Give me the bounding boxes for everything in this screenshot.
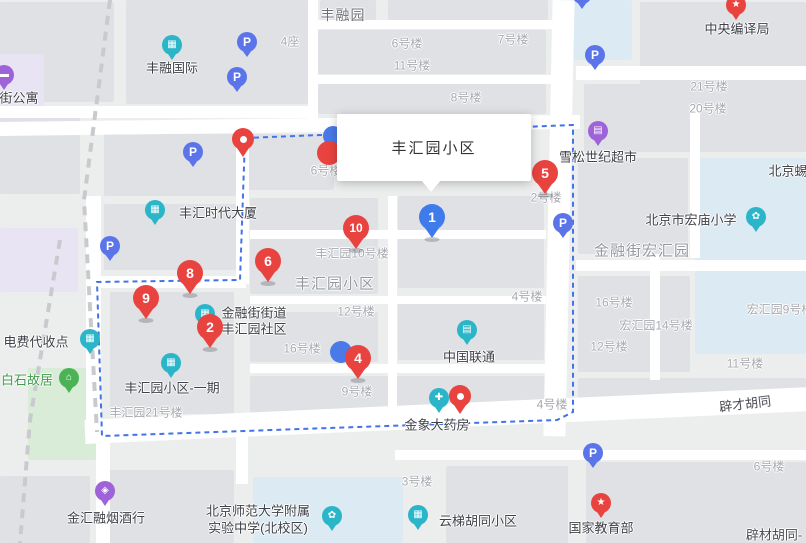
marker-number: 2 bbox=[197, 314, 223, 340]
poi-icon-tail bbox=[167, 372, 175, 378]
marker-number: 6 bbox=[255, 248, 281, 274]
parking-marker[interactable]: P bbox=[100, 236, 120, 262]
poi-icon-glyph: ⌂ bbox=[66, 373, 72, 383]
marker-8[interactable]: 8 bbox=[177, 260, 203, 296]
poi-label: 白石故居 bbox=[1, 370, 53, 389]
road bbox=[690, 106, 700, 258]
parking-marker[interactable]: P bbox=[583, 443, 603, 469]
parking-icon: P bbox=[553, 213, 573, 233]
map-block bbox=[104, 134, 236, 196]
road bbox=[86, 196, 101, 438]
street-label: 辟材胡同- bbox=[746, 525, 802, 543]
poi-icon-tail bbox=[0, 84, 8, 90]
pin-dot bbox=[457, 393, 464, 400]
jinxiang-pharmacy-icon[interactable]: ✚ bbox=[429, 388, 449, 408]
road bbox=[308, 0, 318, 122]
building-label: 16号楼 bbox=[283, 340, 320, 357]
road bbox=[250, 364, 546, 373]
pin-dot bbox=[240, 136, 247, 143]
building-label: 11号楼 bbox=[727, 355, 763, 372]
parking-marker[interactable]: P bbox=[553, 213, 573, 239]
poi-icon-glyph: ★ bbox=[732, 0, 741, 10]
parking-marker-tail bbox=[588, 461, 598, 468]
poi-label: 丰汇园社区 bbox=[221, 319, 286, 338]
poi-icon-tail bbox=[101, 500, 109, 506]
info-window[interactable]: 丰汇园小区 bbox=[337, 114, 531, 181]
poi-icon-glyph: ✚ bbox=[435, 393, 443, 403]
poi-icon-tail bbox=[594, 140, 602, 146]
location-pin[interactable] bbox=[232, 128, 254, 158]
poi-icon-tail bbox=[752, 226, 760, 232]
building-label: 4号楼 bbox=[537, 396, 568, 413]
building-label: 9号楼 bbox=[342, 383, 373, 400]
parking-marker[interactable]: P bbox=[183, 142, 203, 168]
parking-marker-tail bbox=[232, 85, 242, 92]
info-window-pointer bbox=[421, 180, 441, 192]
poi-label: 雪松世纪超市 bbox=[559, 147, 637, 166]
road bbox=[576, 260, 806, 271]
poi-icon-glyph: ★ bbox=[597, 498, 606, 508]
road bbox=[88, 276, 246, 288]
pin-tail bbox=[237, 148, 249, 157]
poi-label: 北京蜴 bbox=[768, 161, 806, 180]
building-label: 12号楼 bbox=[337, 303, 374, 320]
building-label: 6号楼 bbox=[392, 35, 423, 52]
poi-label: 丰汇园小区-一期 bbox=[124, 378, 219, 397]
poi-label: 中国联通 bbox=[443, 347, 495, 366]
area-label: 丰汇园小区 bbox=[295, 273, 375, 294]
parking-marker-tail bbox=[188, 160, 198, 167]
parking-marker-tail bbox=[105, 254, 115, 261]
poi-icon-tail bbox=[597, 512, 605, 518]
poi-icon-tail bbox=[732, 14, 740, 20]
parking-icon: P bbox=[183, 142, 203, 162]
marker-number: 4 bbox=[345, 345, 371, 371]
poi-icon-tail bbox=[435, 407, 443, 413]
poi-label: 金象大药房 bbox=[404, 415, 469, 434]
building-label: 16号楼 bbox=[595, 294, 632, 311]
building-label: 11号楼 bbox=[394, 57, 430, 74]
marker-number: 5 bbox=[532, 160, 558, 186]
road bbox=[318, 75, 560, 84]
poi-label: 云梯胡同小区 bbox=[439, 511, 517, 530]
marker-1[interactable]: 1 bbox=[419, 204, 445, 240]
location-pin[interactable] bbox=[449, 385, 471, 415]
marker-4[interactable]: 4 bbox=[345, 345, 371, 381]
poi-icon-tail bbox=[65, 387, 73, 393]
electric-fee-collection-icon[interactable]: ▦ bbox=[80, 329, 100, 349]
poi-label: 北京市宏庙小学 bbox=[645, 210, 736, 229]
parking-icon: P bbox=[100, 236, 120, 256]
poi-label: 电费代收点 bbox=[3, 332, 68, 351]
jinhui-tobacco-shop-icon[interactable]: ◈ bbox=[95, 481, 115, 501]
area-label: 丰融园 bbox=[321, 5, 366, 25]
poi-icon-glyph: ▬ bbox=[0, 70, 9, 80]
poi-icon-glyph: ▦ bbox=[85, 334, 94, 344]
poi-icon-glyph: ▤ bbox=[462, 325, 471, 335]
yunti-community-icon[interactable]: ▦ bbox=[408, 505, 428, 525]
marker-9[interactable]: 9 bbox=[133, 285, 159, 321]
building-label: 4号楼 bbox=[512, 288, 543, 305]
poi-label: 金汇融烟酒行 bbox=[67, 508, 145, 527]
building-label: 20号楼 bbox=[689, 100, 726, 117]
baishi-residence-icon[interactable]: ⌂ bbox=[59, 368, 79, 388]
building-label: 6号楼 bbox=[754, 458, 785, 475]
marker-number: 10 bbox=[343, 215, 369, 241]
map-block bbox=[446, 466, 568, 543]
road bbox=[250, 230, 546, 239]
parking-icon: P bbox=[237, 32, 257, 52]
parking-marker[interactable]: P bbox=[237, 32, 257, 58]
parking-marker[interactable]: P bbox=[572, 0, 592, 10]
poi-label: 中央编译局 bbox=[704, 19, 769, 38]
parking-marker-tail bbox=[590, 63, 600, 70]
poi-label: 实验中学(北校区) bbox=[208, 518, 308, 537]
building-label: 丰汇园21号楼 bbox=[109, 404, 182, 421]
building-label: 12号楼 bbox=[590, 338, 627, 355]
fenghuiyuan-phase1-icon[interactable]: ▦ bbox=[161, 353, 181, 373]
marker-6[interactable]: 6 bbox=[255, 248, 281, 284]
marker-number: 9 bbox=[133, 285, 159, 311]
parking-icon: P bbox=[227, 67, 247, 87]
building-label: 21号楼 bbox=[690, 78, 727, 95]
map-block bbox=[318, 84, 546, 114]
poi-icon-glyph: ▦ bbox=[166, 358, 175, 368]
poi-icon-glyph: ◈ bbox=[101, 486, 109, 496]
poi-icon-tail bbox=[151, 219, 159, 225]
pin-tail bbox=[454, 405, 466, 414]
map-block bbox=[126, 0, 308, 104]
map-block bbox=[388, 0, 548, 20]
china-unicom-icon[interactable]: ▤ bbox=[457, 320, 477, 340]
building-label: 宏汇园9号楼 bbox=[747, 301, 806, 318]
poi-label: 丰汇时代大厦 bbox=[179, 203, 257, 222]
parking-icon: P bbox=[583, 443, 603, 463]
marker-10[interactable]: 10 bbox=[343, 215, 369, 251]
building-label: 8号楼 bbox=[451, 89, 482, 106]
map-block bbox=[695, 158, 806, 354]
building-label: 4座 bbox=[281, 33, 300, 50]
parking-marker[interactable]: P bbox=[227, 67, 247, 93]
poi-icon-tail bbox=[168, 54, 176, 60]
building-label: 7号楼 bbox=[498, 31, 529, 48]
poi-label: 街公寓 bbox=[0, 88, 39, 107]
building-label: 3号楼 bbox=[402, 473, 433, 490]
poi-icon-tail bbox=[86, 348, 94, 354]
experimental-school-icon[interactable]: ✿ bbox=[322, 506, 342, 526]
parking-marker-tail bbox=[242, 50, 252, 57]
poi-icon-glyph: ✿ bbox=[328, 511, 336, 521]
hongmiao-primary-school-icon[interactable]: ✿ bbox=[746, 207, 766, 227]
area-label: 金融街宏汇园 bbox=[594, 240, 690, 261]
road bbox=[250, 296, 546, 304]
parking-marker[interactable]: P bbox=[585, 45, 605, 71]
building-label: 宏汇园14号楼 bbox=[619, 317, 692, 334]
road bbox=[0, 106, 312, 118]
poi-label: 丰融国际 bbox=[146, 58, 198, 77]
map-canvas[interactable]: 4座6号楼7号楼11号楼8号楼21号楼20号楼2号楼6号楼丰汇园10号楼12号楼… bbox=[0, 0, 806, 543]
parking-icon: P bbox=[585, 45, 605, 65]
fenghui-times-tower-icon[interactable]: ▦ bbox=[145, 200, 165, 220]
poi-icon-tail bbox=[463, 339, 471, 345]
poi-icon-tail bbox=[328, 525, 336, 531]
poi-icon-glyph: ▦ bbox=[167, 40, 176, 50]
poi-icon-glyph: ▦ bbox=[413, 510, 422, 520]
fengrong-international-icon[interactable]: ▦ bbox=[162, 35, 182, 55]
map-block bbox=[0, 228, 78, 292]
marker-2[interactable]: 2 bbox=[197, 314, 223, 350]
poi-icon-glyph: ▦ bbox=[150, 205, 159, 215]
road bbox=[388, 196, 397, 424]
marker-number: 1 bbox=[419, 204, 445, 230]
poi-icon-glyph: ▤ bbox=[593, 126, 602, 136]
marker-5[interactable]: 5 bbox=[532, 160, 558, 196]
info-window-title: 丰汇园小区 bbox=[337, 114, 531, 181]
parking-marker-tail bbox=[558, 231, 568, 238]
poi-icon-tail bbox=[414, 524, 422, 530]
marker-number: 8 bbox=[177, 260, 203, 286]
poi-label: 国家教育部 bbox=[568, 518, 633, 537]
road bbox=[236, 414, 248, 484]
poi-icon-glyph: ✿ bbox=[752, 212, 760, 222]
parking-marker-tail bbox=[577, 2, 587, 9]
education-ministry-icon[interactable]: ★ bbox=[591, 493, 611, 513]
xuesong-supermarket-icon[interactable]: ▤ bbox=[588, 121, 608, 141]
